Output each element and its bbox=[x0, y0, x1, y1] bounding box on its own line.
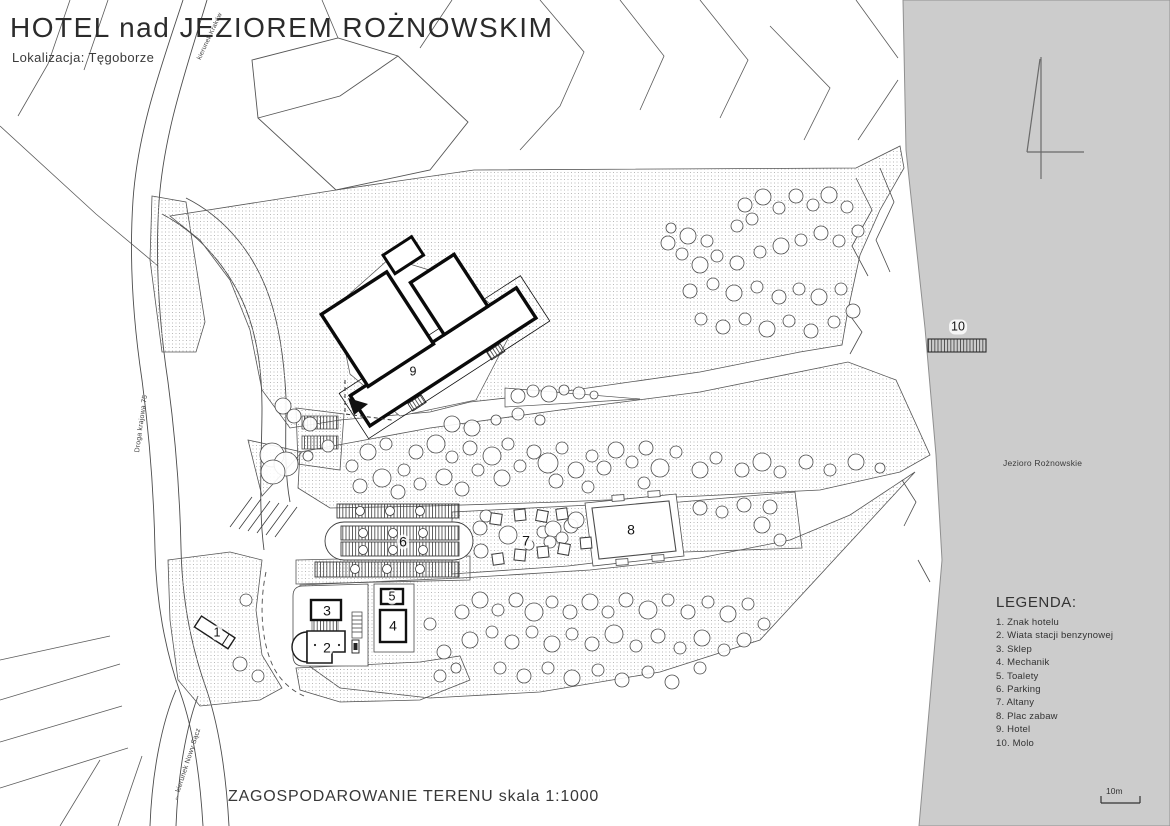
site-plan-board: HOTEL nad JEZIOREM ROŻNOWSKIM Lokalizacj… bbox=[0, 0, 1170, 826]
lake bbox=[903, 0, 1170, 826]
road-fork-south bbox=[150, 690, 198, 826]
crosswalk-hatch bbox=[230, 497, 297, 537]
building-3-shop bbox=[311, 600, 341, 620]
context-lines-bottom bbox=[0, 636, 142, 826]
building-5-toilets bbox=[381, 589, 403, 604]
context-building bbox=[252, 38, 468, 190]
area-west-of-station bbox=[168, 552, 282, 706]
fuel-pump-icon bbox=[352, 640, 359, 653]
parking-6 bbox=[315, 504, 473, 577]
site-plan-drawing bbox=[0, 0, 1170, 826]
canopy-link-hatch bbox=[312, 620, 338, 631]
site-areas bbox=[150, 146, 930, 706]
stairs-by-canopy bbox=[352, 612, 362, 638]
playground-8 bbox=[585, 491, 684, 566]
building-4-mechanic bbox=[380, 610, 406, 642]
pier-10 bbox=[928, 339, 986, 352]
